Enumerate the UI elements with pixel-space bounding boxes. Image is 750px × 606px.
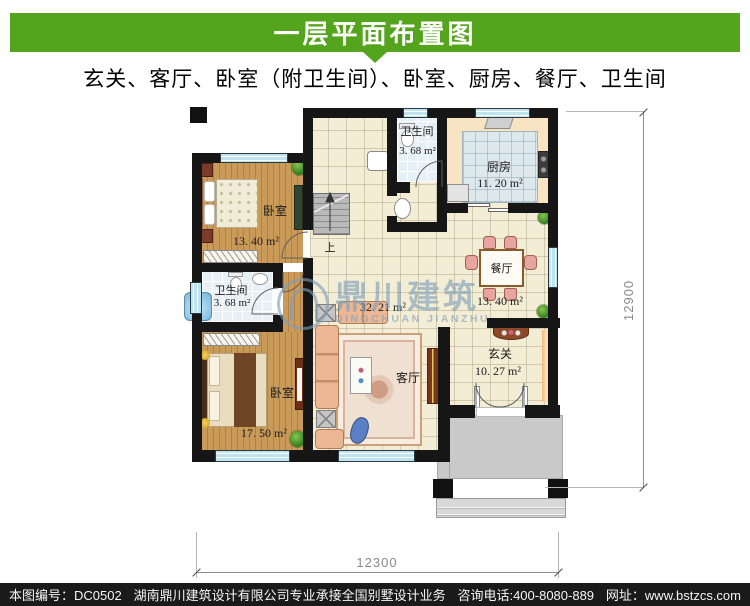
room-area-kitchen: 11. 20 m² <box>471 176 529 191</box>
pillow <box>209 391 220 421</box>
room-area-bedroom-top: 13. 40 m² <box>227 234 285 249</box>
wall <box>387 216 397 232</box>
wall <box>192 153 202 282</box>
wall <box>450 405 475 418</box>
wall <box>192 322 283 332</box>
end-table <box>316 304 336 322</box>
drawing-number: 本图编号：DC0502 <box>9 585 122 604</box>
wall <box>548 108 558 247</box>
window <box>475 108 530 118</box>
coffee-table <box>350 357 372 394</box>
room-label-kitchen: 厨房 <box>474 158 524 175</box>
room-area-dining: 13. 40 m² <box>471 294 529 309</box>
company-name: 湖南鼎川建筑设计有限公司专业承接全国别墅设计业务 <box>134 585 446 604</box>
room-area-living: 32. 21 m² <box>354 300 412 315</box>
kitchen-sink <box>484 117 514 129</box>
title-pointer-triangle <box>363 52 387 63</box>
armchair <box>315 429 344 449</box>
dimension-line-bottom <box>196 572 559 573</box>
room-label-bedroom-bottom: 卧室 <box>257 384 307 401</box>
corner-marker <box>190 107 207 123</box>
website: 网址：www.bstzcs.com <box>606 585 741 604</box>
room-list-subtitle: 玄关、客厅、卧室（附卫生间）、卧室、厨房、餐厅、卫生间 <box>0 63 750 93</box>
wall <box>428 108 475 118</box>
corridor-floor <box>283 272 303 332</box>
wall <box>303 258 313 450</box>
stairs <box>313 193 350 235</box>
door-threshold <box>476 407 526 417</box>
wall <box>303 108 313 230</box>
chair <box>483 236 496 249</box>
chair <box>504 236 517 249</box>
window <box>220 153 288 163</box>
window <box>215 450 290 462</box>
title-bar: 一层平面布置图 <box>10 13 740 52</box>
window <box>548 247 558 288</box>
window <box>190 282 202 314</box>
wardrobe <box>203 250 258 263</box>
rug <box>336 333 422 446</box>
wall <box>438 327 450 462</box>
chair <box>524 255 537 270</box>
room-area-entry: 10. 27 m² <box>469 364 527 379</box>
end-table <box>316 410 336 428</box>
extension-line <box>566 111 644 112</box>
dimension-height: 12900 <box>621 268 637 332</box>
room-label-bath-left: 卫生间 <box>205 282 257 298</box>
chair <box>465 255 478 270</box>
porch-column <box>433 479 453 498</box>
stairs-up-label: 上 <box>320 239 340 255</box>
dining-table: 餐厅 <box>479 249 524 287</box>
pillow <box>204 204 215 225</box>
washing-machine <box>367 151 389 171</box>
pillow <box>209 356 220 386</box>
wall <box>273 272 283 288</box>
pillow <box>204 181 215 202</box>
porch-steps <box>436 498 566 518</box>
room-label-entry: 玄关 <box>480 345 520 362</box>
page-title: 一层平面布置图 <box>273 14 476 51</box>
room-area-bath-left: 3. 68 m² <box>206 297 258 309</box>
room-label-dining: 餐厅 <box>491 260 513 276</box>
wardrobe <box>203 333 260 346</box>
porch-slab <box>447 415 563 479</box>
footer-bar: 本图编号：DC0502 湖南鼎川建筑设计有限公司专业承接全国别墅设计业务 咨询电… <box>0 583 750 606</box>
sofa <box>315 325 339 409</box>
floor-plan-page: 一层平面布置图 玄关、客厅、卧室（附卫生间）、卧室、厨房、餐厅、卫生间 <box>0 0 750 606</box>
wall <box>273 315 283 322</box>
room-label-bedroom-top: 卧室 <box>250 202 300 219</box>
fridge <box>447 184 469 202</box>
wall <box>192 263 283 272</box>
porch-column <box>548 479 568 498</box>
room-area-bedroom-bottom: 17. 50 m² <box>235 426 293 441</box>
phone-number: 咨询电话:400-8080-889 <box>457 585 594 604</box>
window <box>338 450 415 462</box>
sliding-door <box>466 203 490 207</box>
window <box>403 108 428 118</box>
dimension-line-right <box>643 112 644 487</box>
bed-blanket <box>234 353 256 427</box>
room-area-bath-top: 3. 68 m² <box>390 145 445 157</box>
wall <box>290 450 338 462</box>
extension-line <box>545 487 644 488</box>
wall <box>548 288 558 417</box>
room-label-living: 客厅 <box>388 369 428 386</box>
console-table <box>493 327 529 340</box>
wall <box>192 314 202 462</box>
dimension-width: 12300 <box>337 555 417 570</box>
room-label-bath-top: 卫生间 <box>392 123 442 139</box>
